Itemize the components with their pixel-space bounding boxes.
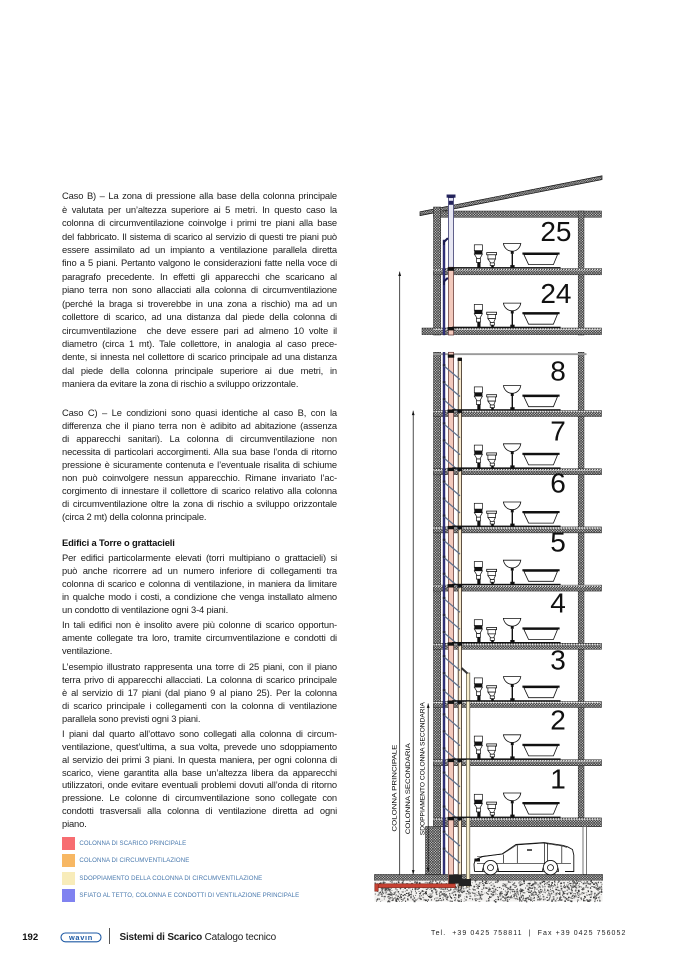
svg-text:5: 5 bbox=[550, 526, 566, 557]
svg-text:3: 3 bbox=[550, 644, 566, 675]
svg-text:SDOPPIAMENTO COLONNA SECONDARI: SDOPPIAMENTO COLONNA SECONDARIA bbox=[419, 702, 426, 836]
svg-text:24: 24 bbox=[540, 278, 571, 309]
svg-text:6: 6 bbox=[550, 467, 566, 498]
svg-text:1: 1 bbox=[550, 763, 566, 794]
svg-text:COLONNA SECONDARIA: COLONNA SECONDARIA bbox=[405, 743, 412, 835]
svg-text:COLONNA PRINCIPALE: COLONNA PRINCIPALE bbox=[392, 744, 399, 832]
svg-text:2: 2 bbox=[550, 704, 566, 735]
svg-text:4: 4 bbox=[550, 587, 566, 618]
svg-text:7: 7 bbox=[550, 415, 566, 446]
svg-text:25: 25 bbox=[540, 216, 571, 247]
svg-text:8: 8 bbox=[550, 355, 566, 386]
svg-text:wavın: wavın bbox=[67, 933, 92, 942]
